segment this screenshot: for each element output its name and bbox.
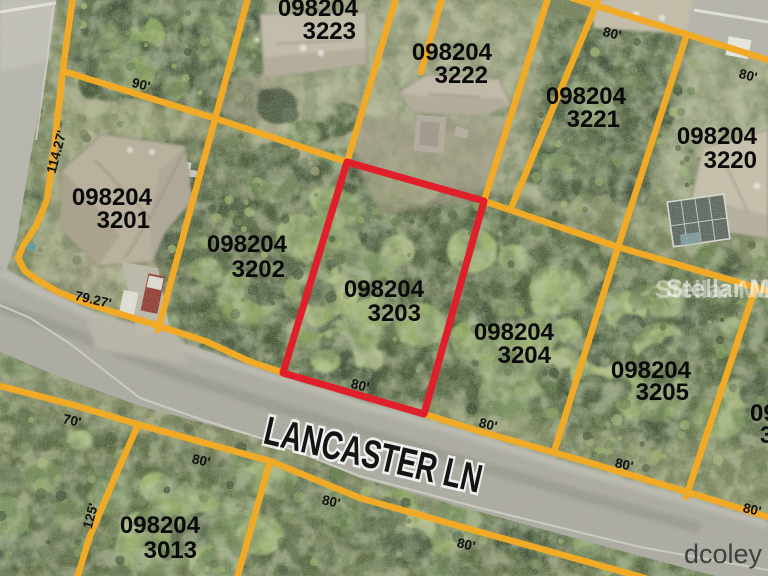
svg-text:3223: 3223	[303, 18, 356, 45]
svg-text:3203: 3203	[368, 300, 421, 327]
svg-text:Stellar MLS: Stellar MLS	[666, 275, 768, 303]
svg-text:098204: 098204	[120, 512, 201, 539]
svg-text:3013: 3013	[144, 537, 197, 564]
svg-text:3205: 3205	[636, 379, 689, 406]
svg-text:32: 32	[760, 422, 768, 449]
svg-text:3222: 3222	[435, 62, 488, 89]
svg-text:3204: 3204	[498, 342, 552, 369]
svg-text:3220: 3220	[704, 147, 757, 174]
svg-text:098204: 098204	[677, 123, 758, 150]
svg-text:dcoley: dcoley	[684, 539, 763, 569]
svg-text:3202: 3202	[232, 256, 285, 283]
svg-text:098204: 098204	[344, 276, 425, 303]
svg-text:098204: 098204	[207, 231, 288, 258]
svg-text:3201: 3201	[97, 207, 150, 234]
svg-text:3221: 3221	[567, 106, 620, 133]
